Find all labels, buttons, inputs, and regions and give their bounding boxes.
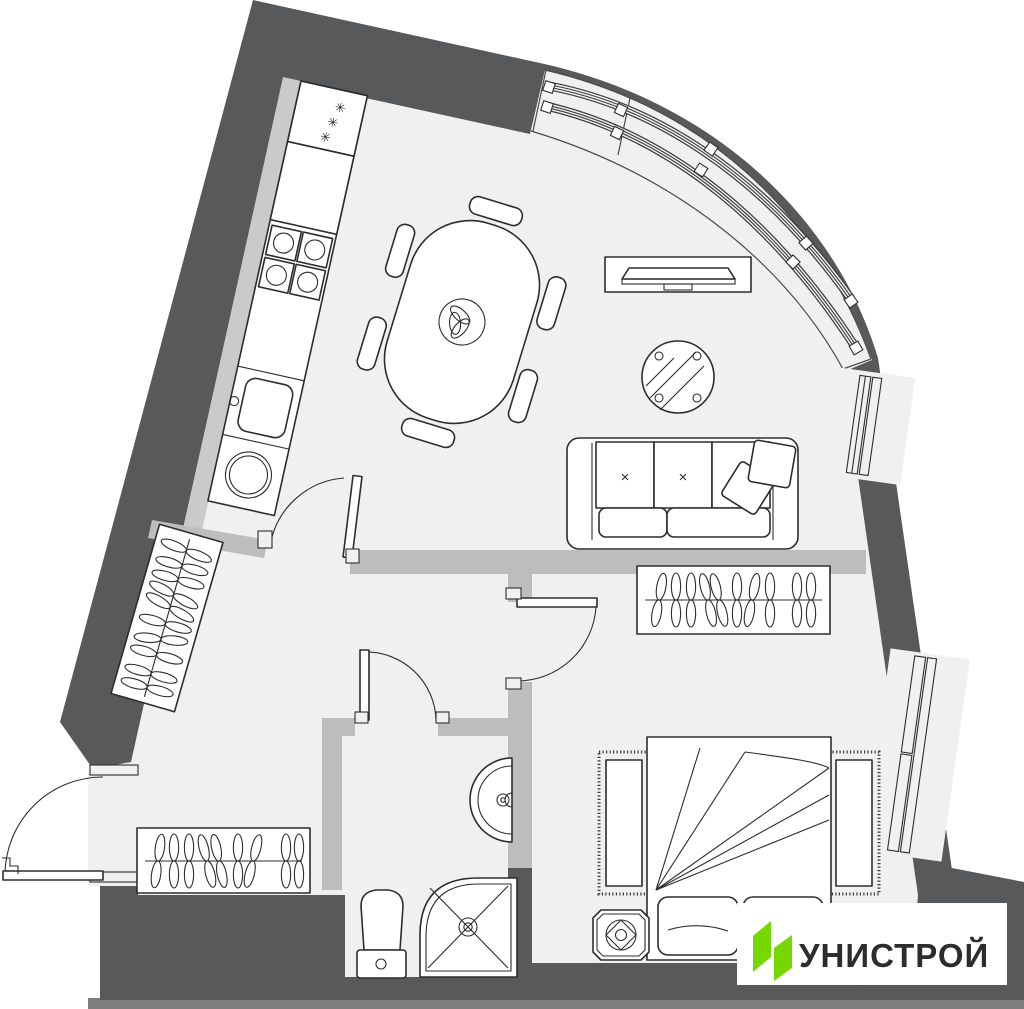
door-threshold — [90, 765, 138, 775]
door-jamb — [436, 712, 449, 723]
ottoman — [593, 910, 649, 960]
bedroom-wardrobe — [637, 566, 830, 634]
door-jamb — [346, 549, 359, 563]
door-jamb — [355, 712, 368, 723]
door-leaf — [360, 650, 369, 720]
partition-bathroom-left — [322, 718, 342, 890]
floor-plan: ✳ ✳ ✳ — [0, 0, 1024, 1009]
sofa-pillow — [748, 440, 797, 489]
sofa-seat-cushion — [599, 508, 667, 537]
partition-bathroom-top-left — [342, 718, 355, 736]
shower — [420, 878, 517, 977]
tv-stand — [605, 257, 751, 292]
coffee-table — [642, 341, 714, 413]
hall-wardrobe-bottom — [137, 828, 310, 893]
door-leaf — [517, 598, 597, 607]
tv — [622, 268, 735, 279]
window-living — [821, 367, 915, 485]
door-jamb — [506, 678, 521, 689]
nightstand-left — [599, 752, 649, 894]
door-jamb — [258, 531, 272, 548]
sofa: × × × — [567, 438, 798, 549]
toilet — [357, 890, 406, 978]
window-opening — [821, 367, 915, 485]
cushion-mark: × — [679, 469, 688, 486]
door-jamb — [506, 588, 521, 599]
brand-name: УНИСТРОЙ — [799, 936, 989, 974]
brand-logo: УНИСТРОЙ — [737, 903, 1007, 985]
nightstand-right — [829, 752, 879, 894]
cushion-mark: × — [621, 469, 630, 486]
toilet-tank — [357, 950, 406, 978]
